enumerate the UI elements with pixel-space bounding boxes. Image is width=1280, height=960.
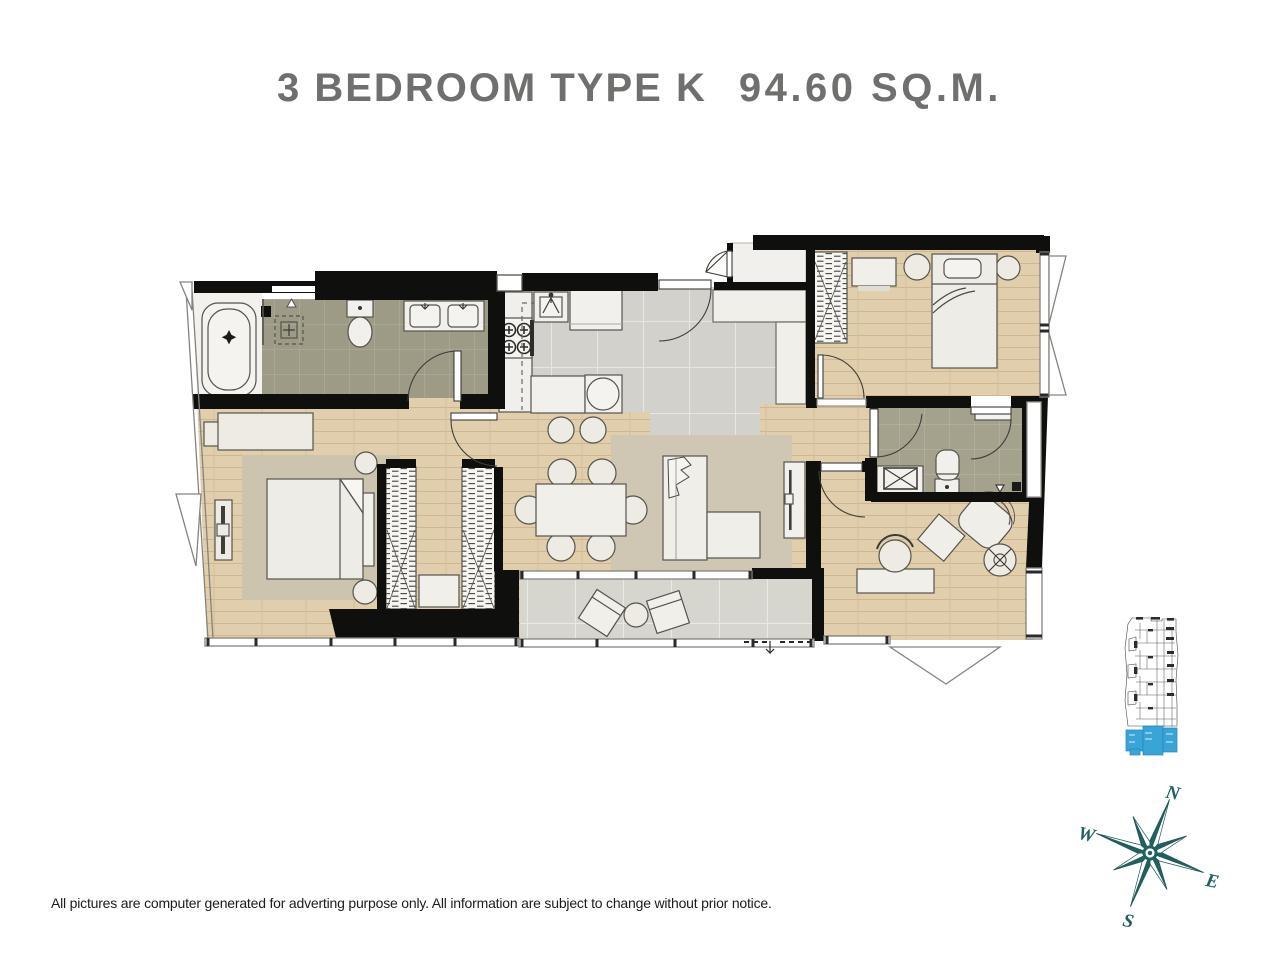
svg-text:N: N	[1163, 782, 1183, 806]
svg-text:E: E	[1203, 870, 1221, 893]
svg-text:S: S	[1121, 910, 1136, 933]
svg-text:W: W	[1076, 823, 1098, 847]
